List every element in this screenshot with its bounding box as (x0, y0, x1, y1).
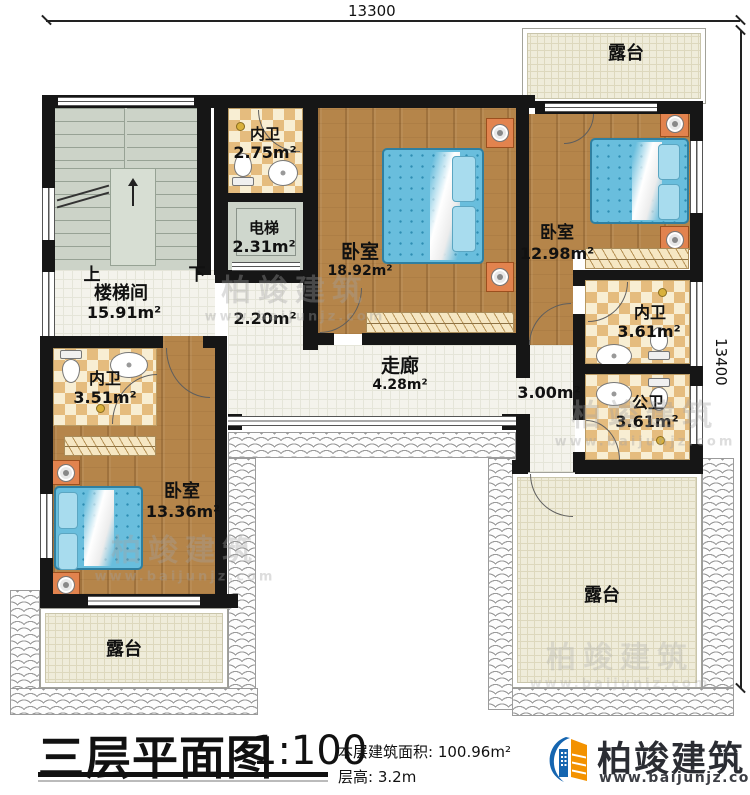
floor-height-value: 3.2m (378, 768, 416, 786)
room-area-bath-left: 3.51m² (73, 389, 136, 407)
wall-segment (585, 270, 690, 280)
room-area-bedroom-right: 12.98m² (520, 245, 594, 263)
lamp-pull-icon (658, 288, 667, 297)
area-hall-right: 3.00m² (517, 384, 580, 402)
stair-up-label: 上 (84, 266, 101, 285)
wall-segment (303, 95, 318, 350)
window (42, 272, 55, 336)
wall-segment (228, 193, 304, 202)
wall-segment (573, 270, 585, 286)
floor-height-info: 层高: 3.2m (338, 766, 416, 787)
room-label-stairwell: 楼梯间 (94, 284, 148, 304)
wall-segment (516, 95, 529, 345)
lamp-icon (492, 125, 508, 141)
room-area-bedroom-master: 18.92m² (327, 264, 392, 279)
wall-segment (512, 460, 528, 474)
window (58, 97, 194, 106)
room-label-bedroom-right: 卧室 (540, 224, 574, 243)
wall-segment (362, 333, 516, 345)
dimension-line-right (740, 30, 742, 688)
pillow (658, 184, 680, 220)
floor-area-info: 本层建筑面积: 100.96m² (338, 741, 511, 762)
title-underline (38, 772, 328, 777)
room-area-elevator: 2.31m² (232, 238, 295, 256)
wardrobe (64, 436, 156, 456)
wall-segment (42, 336, 163, 348)
wall-segment (215, 270, 304, 283)
dimension-top-value: 13300 (348, 2, 396, 20)
wall-segment (214, 95, 228, 275)
room-label-terrace-br: 露台 (584, 586, 620, 606)
floor-plan-canvas: 13300 13400 (0, 0, 750, 795)
window (42, 188, 55, 240)
roof-eave (10, 688, 258, 715)
wall-segment (575, 460, 702, 474)
stair-arrow-head (128, 178, 138, 186)
room-area-bedroom-left: 13.36m² (146, 503, 220, 521)
roof-eave (228, 458, 256, 714)
lamp-pull-icon (236, 122, 245, 131)
nightstand (486, 262, 514, 292)
wall-segment (573, 364, 702, 374)
window (545, 103, 657, 112)
window (88, 596, 200, 606)
pillow (658, 144, 680, 180)
sink-icon (596, 382, 632, 406)
pillow (58, 492, 78, 529)
title-underline-light (38, 780, 328, 782)
nightstand (660, 110, 689, 137)
wall-segment (516, 340, 530, 378)
sink-icon (268, 160, 298, 186)
room-area-bath-right: 3.61m² (617, 323, 680, 341)
room-area-bath-public: 3.61m² (615, 413, 678, 431)
room-area-bath-top: 2.75m² (233, 144, 296, 162)
room-label-terrace-bl: 露台 (106, 640, 142, 660)
wall-segment (318, 333, 334, 345)
plan-title: 三层平面图 (38, 722, 273, 788)
dimension-line-top (46, 20, 740, 22)
stair-flight (156, 168, 197, 268)
lamp-icon (58, 465, 74, 481)
room-label-terrace-tr: 露台 (608, 44, 644, 64)
lamp-pull-icon (656, 436, 665, 445)
floor-height-label: 层高: (338, 768, 373, 786)
roof-eave (228, 432, 516, 458)
lamp-icon (667, 116, 683, 132)
window (690, 282, 703, 366)
room-label-bedroom-master: 卧室 (341, 242, 379, 263)
window (690, 386, 703, 444)
wall-segment (228, 95, 535, 108)
wall-segment (215, 336, 227, 608)
lamp-icon (58, 577, 74, 593)
blanket-fold (84, 490, 114, 566)
wall-segment (40, 336, 53, 608)
room-area-corridor: 4.28m² (372, 378, 427, 393)
roof-eave (512, 688, 734, 716)
wall-segment (197, 95, 211, 275)
wall-segment (573, 314, 585, 366)
room-label-corridor: 走廊 (381, 356, 419, 377)
lamp-icon (667, 232, 683, 248)
stair-flight (127, 108, 197, 168)
terrace-top-right (522, 28, 706, 104)
brand-url: www.baijunjz.com (599, 770, 750, 786)
stair-flight (54, 108, 124, 168)
toilet-icon (60, 350, 82, 384)
pillow (452, 156, 476, 202)
elevator-door (232, 262, 300, 271)
dimension-right-value: 13400 (712, 338, 730, 386)
room-label-bath-right: 内卫 (634, 304, 666, 322)
stair-down-label: 下 (189, 266, 206, 285)
lamp-icon (492, 269, 508, 285)
wardrobe (366, 312, 514, 333)
room-label-bath-top: 内卫 (250, 126, 280, 143)
room-label-bath-left: 内卫 (89, 370, 121, 388)
room-label-bath-public: 公卫 (632, 394, 664, 412)
room-label-bedroom-left: 卧室 (164, 482, 200, 502)
nightstand (486, 118, 514, 148)
terrace-bottom-right (512, 472, 702, 688)
window-railing (228, 416, 516, 426)
stair-direction-arrow (132, 184, 134, 206)
wardrobe (585, 248, 689, 269)
room-area-stairwell: 15.91m² (87, 304, 161, 322)
room-label-elevator: 电梯 (249, 220, 279, 237)
pillow (58, 533, 78, 570)
roof-eave (702, 458, 734, 688)
window (690, 141, 703, 213)
stair-divider (124, 108, 125, 168)
pillow (452, 206, 476, 252)
window (40, 494, 53, 558)
area-hall-elevator: 2.20m² (233, 310, 296, 328)
nightstand (52, 460, 80, 485)
floor-area-value: 100.96m² (438, 743, 511, 761)
floor-area-label: 本层建筑面积: (338, 743, 433, 761)
stair-flight (54, 168, 110, 268)
brand-logo-icon (546, 731, 592, 787)
